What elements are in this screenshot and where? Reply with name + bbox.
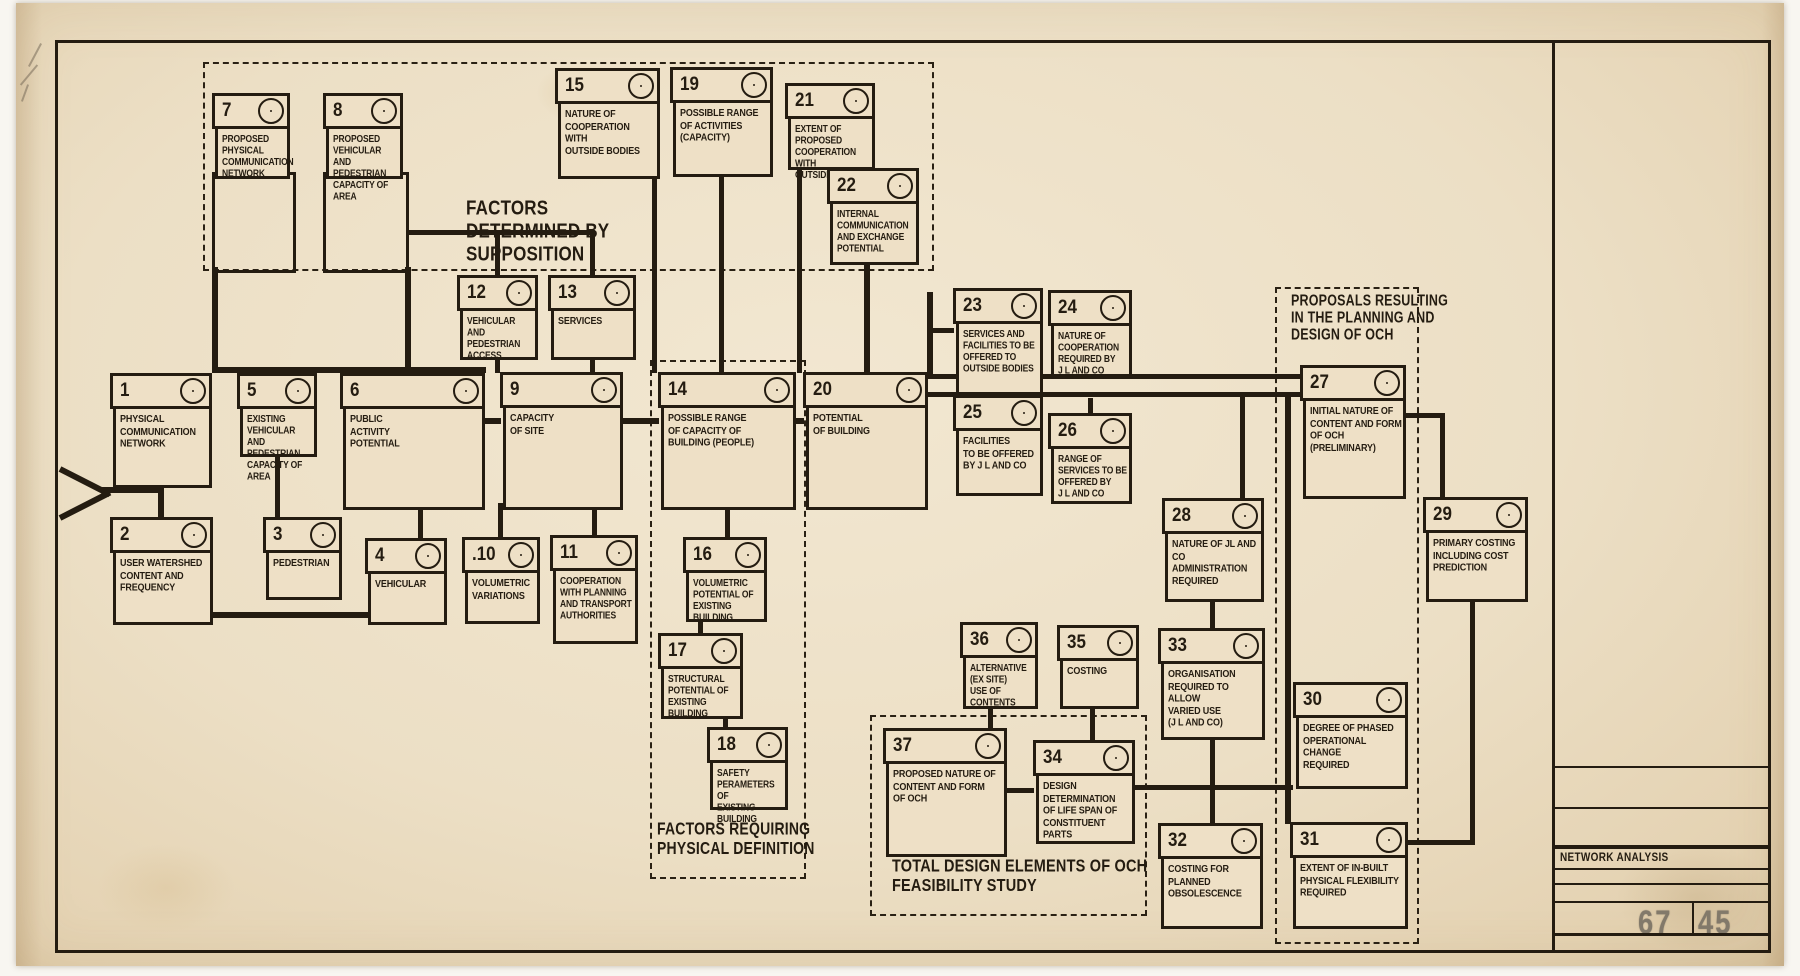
node-label: NATURE OF JL AND CO ADMINISTRATION REQUI…: [1172, 538, 1260, 587]
connector-line: [652, 172, 657, 373]
node-number: 27: [1310, 370, 1329, 395]
group-label-total-design: TOTAL DESIGN ELEMENTS OF OCH FEASIBILITY…: [892, 857, 1147, 897]
connector-line: [1440, 413, 1445, 498]
node-label: ALTERNATIVE (EX SITE) USE OF CONTENTS: [970, 662, 1034, 708]
node-body: PHYSICAL COMMUNICATION NETWORK: [113, 406, 212, 488]
node-label: VOLUMETRIC POTENTIAL OF EXISTING BUILDIN…: [693, 577, 763, 623]
node-number: 19: [680, 72, 699, 97]
connector-line: [795, 418, 804, 424]
node-number: 2: [120, 522, 129, 547]
connector-line: [927, 292, 933, 375]
node-header: 4: [365, 538, 447, 574]
node-label: VOLUMETRIC VARIATIONS: [472, 577, 536, 601]
node-body: EXTENT OF IN-BUILT PHYSICAL FLEXIBILITY …: [1293, 855, 1408, 929]
node-circle-icon: [1376, 827, 1402, 853]
node-body: DEGREE OF PHASED OPERATIONAL CHANGE REQU…: [1296, 715, 1408, 789]
extension-box: [212, 172, 296, 273]
sheet-number-left: 67: [1638, 903, 1673, 943]
node-circle-icon: [506, 280, 532, 306]
connector-line: [719, 170, 724, 373]
node-number: 23: [963, 293, 982, 318]
node-header: 24: [1048, 290, 1132, 326]
node-number: 36: [970, 627, 989, 652]
node-number: 20: [813, 377, 832, 402]
node-header: 8: [323, 93, 403, 129]
node-label: COOPERATION WITH PLANNING AND TRANSPORT …: [560, 575, 634, 621]
connector-line: [1210, 733, 1215, 824]
node-circle-icon: [1376, 687, 1402, 713]
connector-line: [622, 418, 659, 424]
node-number: 16: [693, 542, 712, 567]
connector-line: [930, 328, 954, 333]
title-block-label: NETWORK ANALYSIS: [1560, 852, 1669, 865]
node-body: COSTING FOR PLANNED OBSOLESCENCE: [1161, 856, 1263, 929]
node-label: DEGREE OF PHASED OPERATIONAL CHANGE REQU…: [1303, 722, 1404, 771]
node-body: INITIAL NATURE OF CONTENT AND FORM OF OC…: [1303, 398, 1406, 499]
node-body: VEHICULAR: [368, 571, 447, 625]
node-circle-icon: [1006, 627, 1032, 653]
node-header: 18: [707, 727, 788, 763]
node-header: 19: [670, 67, 773, 103]
node-body: COSTING: [1060, 658, 1139, 709]
node-body: NATURE OF JL AND CO ADMINISTRATION REQUI…: [1165, 531, 1264, 602]
node-number: 5: [247, 378, 256, 403]
node-body: INTERNAL COMMUNICATION AND EXCHANGE POTE…: [830, 201, 919, 265]
node-circle-icon: [741, 72, 767, 98]
node-circle-icon: [453, 378, 479, 404]
pencil-mark: [21, 84, 29, 102]
node-number: 28: [1172, 503, 1191, 528]
node-body: ORGANISATION REQUIRED TO ALLOW VARIED US…: [1161, 661, 1265, 740]
node-label: INITIAL NATURE OF CONTENT AND FORM OF OC…: [1310, 405, 1402, 454]
node-number: 30: [1303, 687, 1322, 712]
node-header: 11: [550, 535, 638, 571]
node-number: 34: [1043, 745, 1062, 770]
node-label: NATURE OF COOPERATION WITH OUTSIDE BODIE…: [565, 108, 656, 157]
node-number: 35: [1067, 630, 1086, 655]
node-number: 33: [1168, 633, 1187, 658]
node-circle-icon: [1232, 503, 1258, 529]
node-label: INTERNAL COMMUNICATION AND EXCHANGE POTE…: [837, 208, 915, 254]
node-label: FACILITIES TO BE OFFERED BY J L AND CO: [963, 435, 1039, 472]
node-number: 26: [1058, 418, 1077, 443]
node-body: PROPOSED NATURE OF CONTENT AND FORM OF O…: [886, 761, 1007, 857]
node-body: STRUCTURAL POTENTIAL OF EXISTING BUILDIN…: [661, 666, 743, 719]
node-body: CAPACITY OF SITE: [503, 405, 623, 510]
node-body: VOLUMETRIC VARIATIONS: [465, 570, 540, 624]
node-number: 13: [558, 280, 577, 305]
node-circle-icon: [1011, 293, 1037, 319]
node-body: POSSIBLE RANGE OF ACTIVITIES (CAPACITY): [673, 100, 773, 177]
node-body: COOPERATION WITH PLANNING AND TRANSPORT …: [553, 568, 638, 644]
node-circle-icon: [606, 540, 632, 566]
group-label-physical-definition: FACTORS REQUIRING PHYSICAL DEFINITION: [657, 820, 815, 858]
frame-line: [55, 40, 58, 953]
node-header: 34: [1033, 740, 1135, 776]
node-label: PROPOSED PHYSICAL COMMUNICATION NETWORK: [222, 133, 286, 179]
connector-line: [405, 267, 411, 368]
node-label: USER WATERSHED CONTENT AND FREQUENCY: [120, 557, 209, 594]
input-arrow-icon: [59, 490, 112, 521]
node-header: 14: [658, 372, 796, 408]
node-header: 7: [212, 93, 290, 129]
node-number: 12: [467, 280, 486, 305]
node-header: 25: [953, 395, 1043, 431]
node-label: SERVICES AND FACILITIES TO BE OFFERED TO…: [963, 328, 1039, 374]
node-circle-icon: [756, 732, 782, 758]
diagram-canvas: NETWORK ANALYSIS 67 45 FACTORS DETERMINE…: [0, 0, 1800, 976]
node-header: 15: [555, 68, 660, 104]
node-header: 31: [1290, 822, 1408, 858]
node-header: 20: [803, 372, 928, 408]
node-label: EXTENT OF IN-BUILT PHYSICAL FLEXIBILITY …: [1300, 862, 1404, 899]
frame-line: [1555, 807, 1768, 809]
node-number: 21: [795, 88, 814, 113]
node-header: 23: [953, 288, 1043, 324]
node-circle-icon: [371, 98, 397, 124]
node-body: PROPOSED VEHICULAR AND PEDESTRIAN CAPACI…: [326, 126, 403, 179]
node-body: VOLUMETRIC POTENTIAL OF EXISTING BUILDIN…: [686, 570, 767, 622]
frame-line: [1552, 40, 1555, 950]
node-circle-icon: [508, 542, 534, 568]
frame-line: [1555, 933, 1768, 936]
node-body: PROPOSED PHYSICAL COMMUNICATION NETWORK: [215, 126, 290, 179]
node-body: NATURE OF COOPERATION REQUIRED BY J L AN…: [1051, 323, 1132, 377]
node-body: PEDESTRIAN: [266, 550, 342, 600]
node-header: 33: [1158, 628, 1265, 664]
node-header: 22: [827, 168, 919, 204]
connector-line: [212, 267, 218, 368]
frame-line: [55, 40, 1771, 43]
node-body: EXTENT OF PROPOSED COOPERATION WITH OUTS…: [788, 116, 875, 170]
node-body: ALTERNATIVE (EX SITE) USE OF CONTENTS: [963, 655, 1038, 709]
node-body: USER WATERSHED CONTENT AND FREQUENCY: [113, 550, 213, 625]
node-number: 29: [1433, 502, 1452, 527]
node-body: PRIMARY COSTING INCLUDING COST PREDICTIO…: [1426, 530, 1528, 602]
frame-line: [1692, 901, 1694, 935]
frame-line: [1555, 766, 1768, 768]
node-number: 15: [565, 73, 584, 98]
node-circle-icon: [285, 378, 311, 404]
node-header: 21: [785, 83, 875, 119]
node-number: 4: [375, 543, 384, 568]
node-label: POSSIBLE RANGE OF ACTIVITIES (CAPACITY): [680, 107, 769, 144]
frame-line: [1555, 845, 1768, 849]
connector-line: [1285, 394, 1291, 824]
sheet-number-right: 45: [1698, 903, 1733, 943]
node-circle-icon: [896, 377, 922, 403]
connector-line: [1405, 413, 1445, 418]
node-header: 13: [548, 275, 636, 311]
node-body: DESIGN DETERMINATION OF LIFE SPAN OF CON…: [1036, 773, 1135, 844]
node-header: 16: [683, 537, 767, 573]
node-label: PEDESTRIAN: [273, 557, 338, 569]
node-number: 25: [963, 400, 982, 425]
node-label: POTENTIAL OF BUILDING: [813, 412, 924, 436]
node-circle-icon: [415, 543, 441, 569]
node-number: 14: [668, 377, 687, 402]
node-number: 18: [717, 732, 736, 757]
node-number: 6: [350, 378, 359, 403]
node-circle-icon: [181, 522, 207, 548]
node-circle-icon: [1100, 295, 1126, 321]
node-circle-icon: [843, 88, 869, 114]
node-label: COSTING: [1067, 665, 1135, 677]
node-circle-icon: [735, 542, 761, 568]
pencil-mark: [28, 43, 42, 67]
connector-line: [590, 233, 595, 275]
node-label: CAPACITY OF SITE: [510, 412, 619, 436]
node-circle-icon: [628, 73, 654, 99]
node-circle-icon: [1103, 745, 1129, 771]
node-label: PROPOSED NATURE OF CONTENT AND FORM OF O…: [893, 768, 1003, 805]
node-label: RANGE OF SERVICES TO BE OFFERED BY J L A…: [1058, 453, 1128, 499]
group-label-proposals: PROPOSALS RESULTING IN THE PLANNING AND …: [1291, 292, 1448, 343]
connector-line: [864, 258, 870, 373]
node-label: PROPOSED VEHICULAR AND PEDESTRIAN CAPACI…: [333, 133, 399, 202]
node-label: EXISTING VEHICULAR AND PEDESTRIAN CAPACI…: [247, 413, 313, 482]
node-header: 1: [110, 373, 212, 409]
node-number: 32: [1168, 828, 1187, 853]
frame-line: [1555, 868, 1768, 870]
connector-line: [1470, 595, 1475, 845]
node-header: 9: [500, 372, 623, 408]
node-number: 3: [273, 522, 282, 547]
node-circle-icon: [310, 522, 336, 548]
node-circle-icon: [1011, 400, 1037, 426]
node-circle-icon: [1231, 828, 1257, 854]
connector-line: [1007, 788, 1034, 793]
frame-line: [55, 950, 1771, 953]
node-header: 30: [1293, 682, 1408, 718]
node-number: 9: [510, 377, 519, 402]
node-body: SERVICES: [551, 308, 636, 360]
node-body: POTENTIAL OF BUILDING: [806, 405, 928, 510]
frame-line: [1555, 883, 1768, 885]
node-circle-icon: [975, 733, 1001, 759]
pencil-mark: [20, 64, 38, 85]
node-header: 32: [1158, 823, 1263, 859]
node-number: 17: [668, 638, 687, 663]
node-body: FACILITIES TO BE OFFERED BY J L AND CO: [956, 428, 1043, 496]
node-circle-icon: [180, 378, 206, 404]
node-header: 17: [658, 633, 743, 669]
node-label: PRIMARY COSTING INCLUDING COST PREDICTIO…: [1433, 537, 1524, 574]
node-header: 35: [1057, 625, 1139, 661]
node-number: .10: [472, 542, 496, 567]
node-body: RANGE OF SERVICES TO BE OFFERED BY J L A…: [1051, 446, 1132, 504]
node-circle-icon: [1100, 418, 1126, 444]
frame-line: [1768, 40, 1771, 953]
connector-line: [1135, 785, 1293, 790]
node-number: 8: [333, 98, 342, 123]
node-header: .10: [462, 537, 540, 573]
node-circle-icon: [764, 377, 790, 403]
node-header: 12: [457, 275, 538, 311]
photographed-drawing: NETWORK ANALYSIS 67 45 FACTORS DETERMINE…: [0, 0, 1800, 976]
node-circle-icon: [711, 638, 737, 664]
node-label: POSSIBLE RANGE OF CAPACITY OF BUILDING (…: [668, 412, 792, 449]
node-circle-icon: [604, 280, 630, 306]
connector-line: [1408, 840, 1475, 845]
connector-line: [485, 418, 501, 424]
node-header: 5: [237, 373, 317, 409]
node-body: NATURE OF COOPERATION WITH OUTSIDE BODIE…: [558, 101, 660, 179]
node-header: 2: [110, 517, 213, 553]
node-body: EXISTING VEHICULAR AND PEDESTRIAN CAPACI…: [240, 406, 317, 457]
node-header: 36: [960, 622, 1038, 658]
node-label: DESIGN DETERMINATION OF LIFE SPAN OF CON…: [1043, 780, 1131, 841]
node-header: 27: [1300, 365, 1406, 401]
node-label: STRUCTURAL POTENTIAL OF EXISTING BUILDIN…: [668, 673, 739, 719]
node-circle-icon: [258, 98, 284, 124]
connector-line: [1088, 398, 1093, 414]
node-circle-icon: [1233, 633, 1259, 659]
node-label: COSTING FOR PLANNED OBSOLESCENCE: [1168, 863, 1259, 900]
node-body: VEHICULAR AND PEDESTRIAN ACCESS: [460, 308, 538, 360]
node-body: SAFETY PERAMETERS OF EXISTING BUILDING: [710, 760, 788, 810]
node-label: SAFETY PERAMETERS OF EXISTING BUILDING: [717, 767, 784, 825]
connector-line: [407, 230, 595, 235]
frame-line: [1555, 901, 1768, 903]
node-header: 3: [263, 517, 342, 553]
node-number: 37: [893, 733, 912, 758]
node-number: 7: [222, 98, 231, 123]
node-label: VEHICULAR AND PEDESTRIAN ACCESS: [467, 315, 534, 361]
node-label: PHYSICAL COMMUNICATION NETWORK: [120, 413, 208, 450]
node-label: SERVICES: [558, 315, 632, 327]
node-header: 26: [1048, 413, 1132, 449]
node-label: VEHICULAR: [375, 578, 443, 590]
node-header: 37: [883, 728, 1007, 764]
node-number: 31: [1300, 827, 1319, 852]
node-number: 24: [1058, 295, 1077, 320]
node-header: 29: [1423, 497, 1528, 533]
node-label: ORGANISATION REQUIRED TO ALLOW VARIED US…: [1168, 668, 1261, 729]
node-circle-icon: [1374, 370, 1400, 396]
node-circle-icon: [1496, 502, 1522, 528]
node-circle-icon: [1107, 630, 1133, 656]
node-circle-icon: [887, 173, 913, 199]
node-circle-icon: [591, 377, 617, 403]
node-header: 6: [340, 373, 485, 409]
node-body: SERVICES AND FACILITIES TO BE OFFERED TO…: [956, 321, 1043, 395]
node-body: PUBLIC ACTIVITY POTENTIAL: [343, 406, 485, 510]
connector-line: [495, 233, 500, 275]
node-number: 22: [837, 173, 856, 198]
node-body: POSSIBLE RANGE OF CAPACITY OF BUILDING (…: [661, 405, 796, 510]
connector-line: [797, 163, 802, 373]
connector-line: [1240, 392, 1245, 499]
node-label: PUBLIC ACTIVITY POTENTIAL: [350, 413, 481, 450]
node-header: 28: [1162, 498, 1264, 534]
node-number: 1: [120, 378, 129, 403]
node-number: 11: [560, 540, 578, 565]
node-label: NATURE OF COOPERATION REQUIRED BY J L AN…: [1058, 330, 1128, 376]
